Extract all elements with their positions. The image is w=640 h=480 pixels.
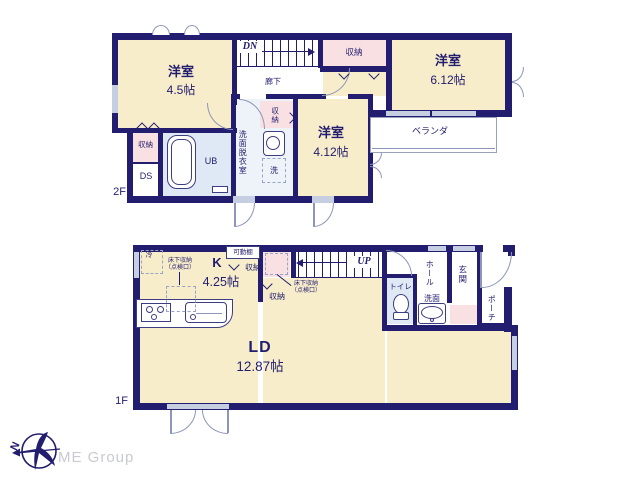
closet-wash-label: 収納 bbox=[270, 104, 279, 126]
wall-line bbox=[133, 162, 158, 164]
window bbox=[512, 336, 517, 370]
stairs-up-bottom-line bbox=[296, 277, 382, 278]
toilet-tank bbox=[393, 312, 409, 320]
underfloor-storage-mid-dash bbox=[265, 253, 288, 275]
porch-label: ポーチ bbox=[487, 290, 496, 326]
stairs-dn-arrowhead bbox=[308, 48, 315, 56]
wall bbox=[505, 33, 512, 117]
ld-right-floor bbox=[387, 331, 513, 403]
corridor-label: 廊下 bbox=[258, 77, 288, 86]
wall bbox=[291, 245, 296, 278]
wall bbox=[318, 33, 323, 68]
kitchen-size: 4.25帖 bbox=[192, 275, 250, 289]
casement-window-arc bbox=[512, 82, 524, 97]
wall bbox=[386, 33, 392, 117]
window bbox=[428, 246, 446, 251]
toilet-door-arc bbox=[386, 250, 412, 276]
wall bbox=[158, 130, 163, 203]
fridge-label: 冷 bbox=[142, 252, 156, 260]
washbasin-label: 洗面 bbox=[418, 294, 446, 303]
window bbox=[134, 252, 139, 278]
stairs-up-arrowhead bbox=[296, 259, 303, 267]
stove-burner bbox=[146, 306, 153, 313]
closet-shelf-label: 収納 bbox=[238, 263, 268, 272]
room-612-name: 洋室 bbox=[413, 54, 483, 69]
window bbox=[112, 85, 118, 113]
stairs-dn-arrow-line bbox=[262, 51, 308, 52]
casement-window-arc bbox=[370, 153, 382, 165]
ld-size: 12.87帖 bbox=[210, 359, 310, 375]
window bbox=[453, 246, 475, 251]
ds-label: DS bbox=[134, 171, 158, 181]
wall bbox=[112, 33, 512, 40]
washer-label: 洗 bbox=[265, 166, 283, 175]
casement-window-arc bbox=[370, 166, 382, 178]
room-412-name: 洋室 bbox=[296, 126, 366, 141]
floor-2f-label: 2F bbox=[100, 186, 126, 199]
window bbox=[233, 196, 255, 203]
toilet-label: トイレ bbox=[387, 283, 414, 292]
underfloor-mid-label: 床下収納 （点検口） bbox=[284, 281, 328, 295]
casement-window-arc bbox=[512, 67, 524, 82]
ld-door-leaf bbox=[227, 410, 229, 433]
sink-inner-line bbox=[196, 313, 222, 314]
ub-label: UB bbox=[198, 156, 224, 166]
entrance-label: 玄関 bbox=[457, 260, 467, 288]
stove-burner bbox=[151, 314, 157, 320]
window-swing-arc bbox=[313, 203, 334, 227]
floor-plan: DN 廊下 bbox=[0, 0, 640, 480]
wall bbox=[112, 33, 118, 133]
window bbox=[167, 404, 229, 409]
hall-label: ホール bbox=[425, 255, 434, 291]
window-leaf bbox=[234, 203, 236, 226]
ld-door-arc bbox=[170, 410, 196, 434]
window-mullion bbox=[430, 110, 432, 117]
stairs-dn-bottom-line bbox=[237, 66, 320, 67]
entrance-mat bbox=[450, 305, 478, 324]
window-leaf bbox=[313, 203, 315, 226]
shower-control bbox=[212, 186, 228, 193]
company-logo-text: ME Group bbox=[58, 449, 134, 466]
wall bbox=[413, 274, 417, 325]
window-swing-arc bbox=[234, 203, 255, 227]
ld-door-arc bbox=[202, 410, 228, 434]
front-door-arc bbox=[482, 252, 512, 288]
underfloor-kitchen-leader bbox=[179, 272, 180, 285]
stairs-up-arrow-line bbox=[303, 262, 347, 263]
room-45-size: 4.5帖 bbox=[146, 84, 216, 98]
compass-north-letter: N bbox=[8, 440, 22, 452]
room-45-name: 洋室 bbox=[146, 65, 216, 80]
veranda-rail-inner bbox=[372, 148, 495, 149]
window bbox=[312, 196, 334, 203]
ld-door-leaf bbox=[170, 410, 172, 433]
stairs-up-label: UP bbox=[352, 256, 376, 268]
closet-west-label: 収納 bbox=[133, 141, 158, 150]
room-612-size: 6.12帖 bbox=[413, 74, 483, 88]
veranda-label: ベランダ bbox=[398, 126, 462, 136]
underfloor-kitchen-label: 床下収納 （点検口） bbox=[158, 258, 202, 272]
stairs-dn-label: DN bbox=[238, 41, 262, 53]
washbasin-drain bbox=[430, 318, 434, 322]
floor-1f-label: 1F bbox=[100, 395, 128, 408]
movable-shelf-label: 可動棚 bbox=[226, 249, 260, 256]
vent-window bbox=[152, 25, 170, 35]
sink-faucet bbox=[190, 314, 196, 320]
toilet-bowl bbox=[393, 294, 409, 314]
stove-burner bbox=[157, 306, 164, 313]
kitchen-name: K bbox=[204, 256, 230, 271]
closet-hall-label: 収納 bbox=[336, 48, 372, 58]
bathtub-inner bbox=[171, 139, 192, 185]
washbasin-2f-bowl bbox=[266, 136, 280, 150]
room-412-size: 4.12帖 bbox=[296, 146, 366, 160]
wall bbox=[447, 245, 452, 303]
vent-window bbox=[184, 25, 200, 35]
ld-name: LD bbox=[220, 339, 300, 357]
underfloor-storage-kitchen bbox=[166, 286, 196, 312]
washroom-label: 洗面脱衣室 bbox=[238, 110, 247, 194]
